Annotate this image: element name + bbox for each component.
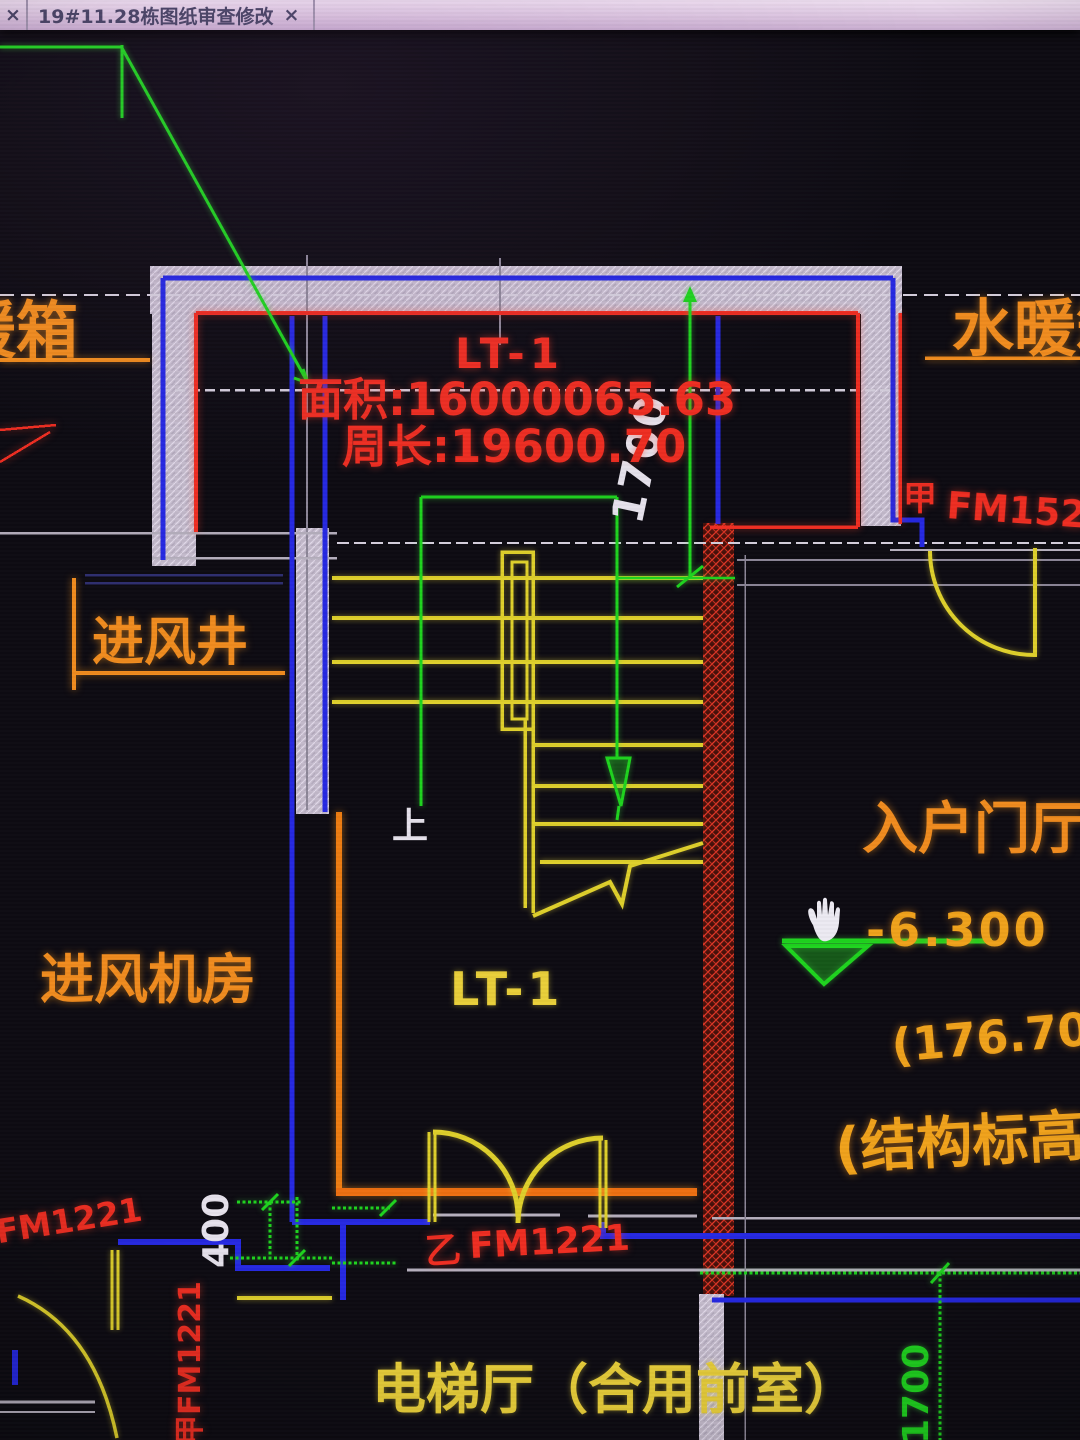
area-label: 面积:16000065.63	[298, 373, 736, 426]
up-direction-mark: 上	[392, 806, 428, 847]
tab-close-button[interactable]: ×	[283, 4, 299, 26]
door-b-bottom-prefix: 乙	[424, 1230, 463, 1273]
door-a-right-prefix: 甲	[903, 479, 937, 519]
stair-label: LT-1	[450, 962, 563, 1016]
air-inlet-room-label: 进风机房	[40, 948, 256, 1011]
dim-bottom-1700: 1700	[896, 1344, 937, 1440]
door-a-right-code: FM1521	[945, 484, 1080, 538]
cad-viewport[interactable]: 1700 400 上 LT-1 面积:16000065.63 周长:19600.…	[0, 0, 1080, 1440]
entry-hall-label: 入户门厅	[862, 797, 1080, 862]
prev-tab-close-button[interactable]: ×	[0, 4, 26, 26]
stair-name-top: LT-1	[455, 329, 564, 378]
hand-cursor	[808, 898, 840, 942]
air-inlet-shaft-label: 进风井	[92, 613, 248, 673]
active-drawing-tab[interactable]: 19#11.28栋图纸审查修改 ×	[28, 0, 315, 30]
white-dimension-texts: 1700 400 上	[196, 390, 679, 1268]
structural-elevation-value: (176.700	[889, 999, 1080, 1073]
structural-elevation-label: (结构标高)	[833, 1103, 1080, 1182]
door-b-bottom-code: FM1221	[468, 1218, 631, 1267]
cad-screen-photo: × 19#11.28栋图纸审查修改 ×	[0, 0, 1080, 1440]
duct-box-right-label: 水暖箱	[952, 292, 1080, 365]
navy-duct-lines	[85, 575, 283, 583]
elevation-value: -6.300	[866, 903, 1049, 957]
elevator-hall-label: 电梯厅（合用前室）	[372, 1358, 858, 1421]
tab-bar: × 19#11.28栋图纸审查修改 ×	[0, 0, 1080, 30]
tab-bar-empty	[315, 0, 1080, 30]
door-a-left-vertical: 甲FM1221	[173, 1281, 208, 1440]
dim-400: 400	[196, 1193, 237, 1268]
green-texts: 1700	[896, 1344, 937, 1440]
duct-box-left-label: 暖箱	[0, 294, 78, 367]
perimeter-label: 周长:19600.70	[342, 420, 686, 473]
stair-yellow-geometry	[332, 552, 703, 916]
tab-label: 19#11.28栋图纸审查修改	[38, 2, 273, 29]
